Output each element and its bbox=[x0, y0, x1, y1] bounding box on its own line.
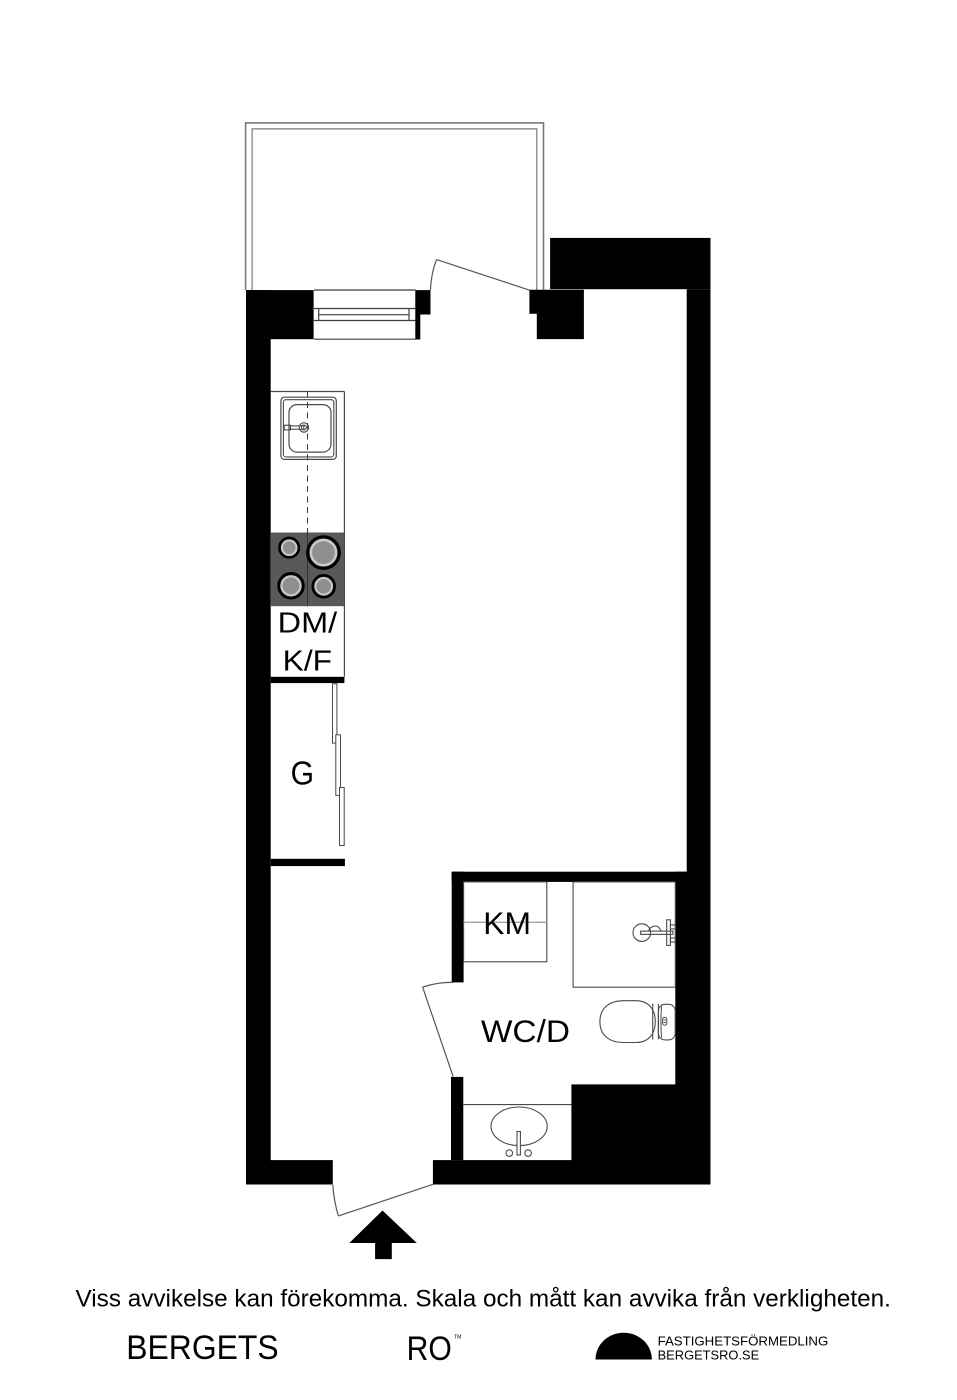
svg-text:BERGETS: BERGETS bbox=[126, 1329, 278, 1367]
svg-text:Viss avvikelse kan förekomma.: Viss avvikelse kan förekomma. Skala och … bbox=[76, 1286, 891, 1313]
svg-text:BERGETSRO.SE: BERGETSRO.SE bbox=[658, 1348, 760, 1363]
svg-text:RO: RO bbox=[407, 1330, 452, 1368]
svg-text:K/F: K/F bbox=[283, 646, 332, 678]
svg-text:WC/D: WC/D bbox=[481, 1013, 570, 1049]
svg-text:FASTIGHETSFÖRMEDLING: FASTIGHETSFÖRMEDLING bbox=[658, 1333, 829, 1348]
svg-text:KM: KM bbox=[483, 905, 531, 941]
svg-text:TM: TM bbox=[454, 1334, 462, 1340]
svg-text:DM/: DM/ bbox=[278, 607, 339, 639]
svg-text:G: G bbox=[291, 754, 314, 791]
